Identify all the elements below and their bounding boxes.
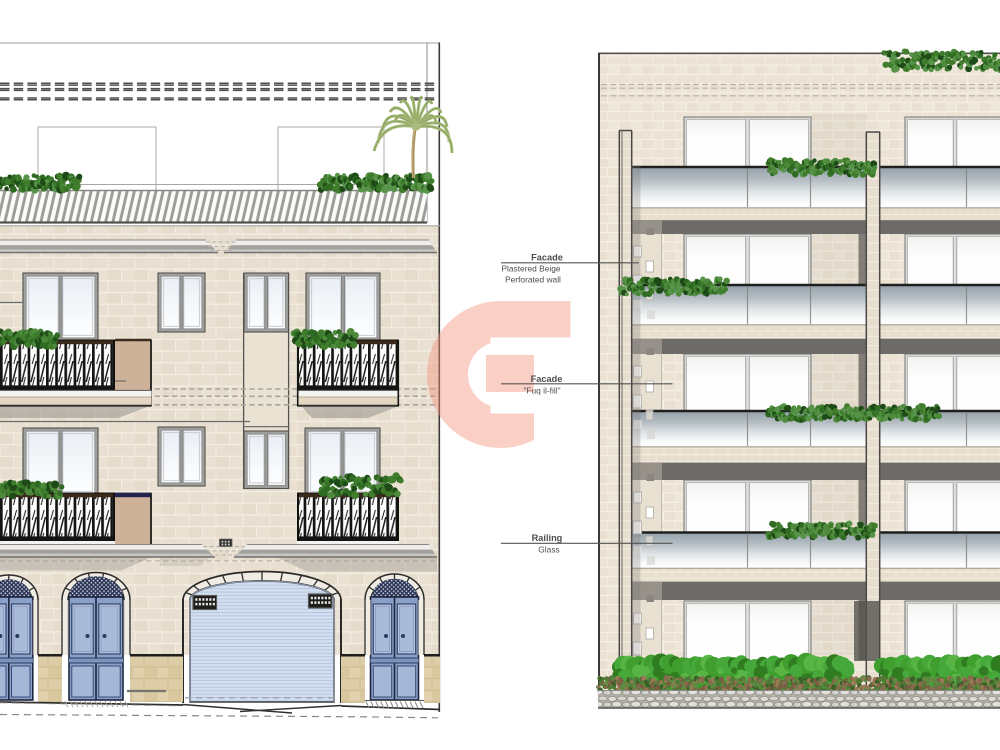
svg-text:Railing: Railing (532, 533, 563, 543)
svg-text:Glass: Glass (538, 545, 559, 555)
svg-text:Plastered Beige: Plastered Beige (501, 264, 560, 274)
svg-text:Facade: Facade (531, 374, 563, 384)
svg-text:Facade: Facade (531, 253, 563, 263)
svg-text:"Fuq il-fill": "Fuq il-fill" (523, 386, 560, 396)
svg-text:Perforated wall: Perforated wall (505, 275, 561, 285)
